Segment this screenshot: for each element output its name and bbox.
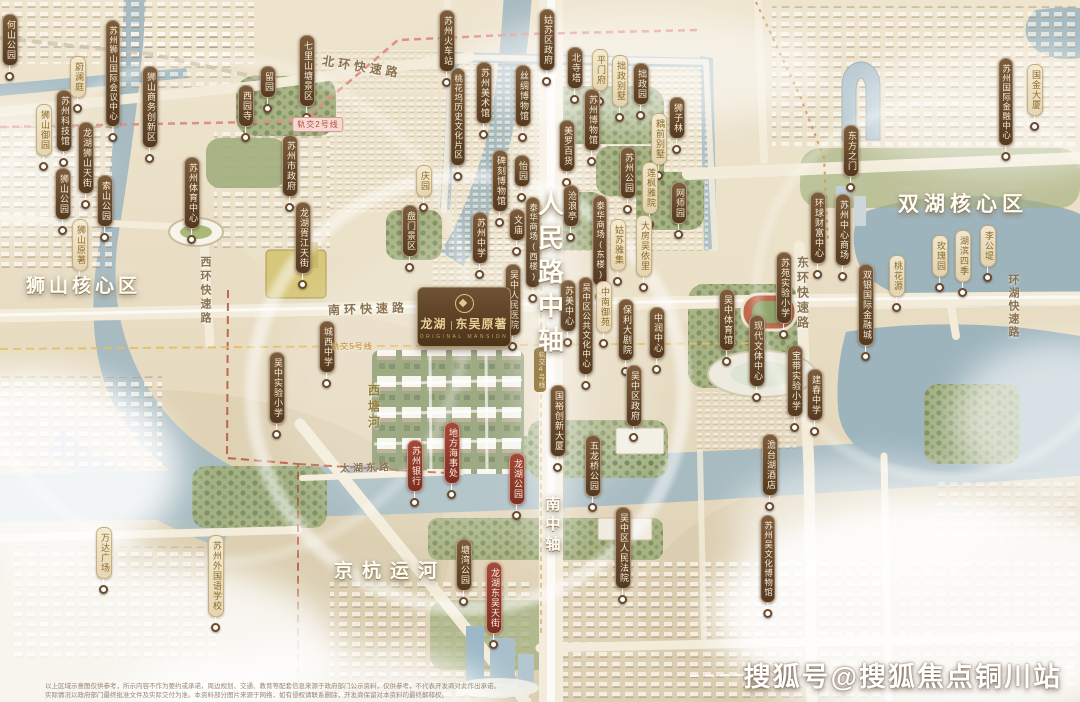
poi-pin-stem bbox=[814, 421, 815, 427]
poi-pin-dot-icon bbox=[892, 303, 901, 312]
poi-pin-stem bbox=[521, 187, 522, 193]
project-logo-card: 龙湖东吴原著 ORIGINAL MANSION bbox=[417, 287, 511, 347]
map-poi-label: 龙湖狮山天街 bbox=[78, 122, 94, 209]
poi-pin-dot-icon bbox=[672, 145, 681, 154]
poi-pin-stem bbox=[85, 194, 86, 200]
poi-pin-stem bbox=[625, 361, 626, 367]
poi-pin-stem bbox=[768, 603, 769, 609]
poi-pin-dot-icon bbox=[512, 511, 521, 520]
map-poi-label: 国裕创新大厦 bbox=[550, 385, 566, 472]
map-poi-label: 苏州中心商场 bbox=[835, 194, 851, 281]
poi-pin-stem bbox=[522, 127, 523, 133]
poi-pin-dot-icon bbox=[813, 270, 822, 279]
poi-pin-dot-icon bbox=[570, 95, 579, 104]
poi-pin-dot-icon bbox=[39, 162, 48, 171]
poi-pin-stem bbox=[446, 72, 447, 78]
map-overlay: 何山公园苏州狮山国际会议中心狮山商务创新区苏州科技馆蔚澜庭狮山御园龙湖狮山天街狮… bbox=[0, 0, 1080, 702]
poi-pin-stem bbox=[104, 227, 105, 233]
poi-pin-dot-icon bbox=[652, 365, 661, 374]
poi-pin-dot-icon bbox=[489, 640, 498, 649]
district-title: 南中轴 bbox=[542, 496, 563, 556]
poi-pin-stem bbox=[769, 496, 770, 502]
poi-pin-dot-icon bbox=[442, 78, 451, 87]
road-label: 太湖东路 bbox=[340, 458, 392, 475]
poi-pin-stem bbox=[409, 257, 410, 263]
poi-pin-dot-icon bbox=[99, 585, 108, 594]
poi-pin-dot-icon bbox=[241, 133, 250, 142]
poi-pin-dot-icon bbox=[645, 220, 654, 229]
poi-pin-stem bbox=[62, 220, 63, 226]
poi-pin-stem bbox=[479, 264, 480, 270]
poi-pin-stem bbox=[516, 505, 517, 511]
watermark: 搜狐号@搜狐焦点铜川站 bbox=[744, 655, 1062, 694]
poi-pin-stem bbox=[622, 589, 623, 595]
poi-pin-stem bbox=[567, 332, 568, 338]
poi-pin-stem bbox=[676, 139, 677, 145]
map-poi-label: 桃花源 bbox=[889, 255, 905, 312]
poi-pin-dot-icon bbox=[419, 203, 428, 212]
poi-pin-stem bbox=[414, 492, 415, 498]
poi-pin-stem bbox=[1006, 146, 1007, 152]
poi-pin-dot-icon bbox=[599, 339, 608, 348]
poi-pin-dot-icon bbox=[621, 367, 630, 376]
poi-pin-dot-icon bbox=[623, 205, 632, 214]
map-poi-label: 狮山御园 bbox=[36, 104, 52, 171]
map-poi-label: 耦前别墅 bbox=[651, 113, 667, 180]
poi-pin-stem bbox=[306, 107, 307, 113]
poi-pin-stem bbox=[574, 89, 575, 95]
poi-pin-stem bbox=[570, 227, 571, 233]
map-poi-label: 七里山塘景区 bbox=[299, 35, 315, 122]
map-poi-label: 姑苏区政府 bbox=[539, 9, 555, 86]
map-poi-label: 东方之门 bbox=[843, 125, 859, 192]
map-poi-label: 北寺塔 bbox=[567, 47, 583, 104]
map-poi-label: 国金大厦 bbox=[1027, 64, 1043, 131]
map-poi-label: 万达广场 bbox=[96, 527, 112, 594]
poi-pin-stem bbox=[592, 497, 593, 503]
poi-pin-dot-icon bbox=[100, 233, 109, 242]
poi-pin-dot-icon bbox=[810, 427, 819, 436]
poi-pin-stem bbox=[276, 424, 277, 430]
map-poi-label: 拙政园 bbox=[633, 63, 649, 120]
poi-pin-dot-icon bbox=[58, 226, 67, 235]
map-poi-label: 美罗百货 bbox=[559, 120, 575, 187]
flower-medallion-icon bbox=[455, 294, 474, 313]
poi-pin-dot-icon bbox=[935, 283, 944, 292]
map-poi-label: 莲枫雅院 bbox=[642, 162, 658, 229]
poi-pin-stem bbox=[591, 151, 592, 157]
poi-pin-stem bbox=[463, 591, 464, 597]
map-poi-label: 桃花坞历史文化片区 bbox=[450, 68, 465, 181]
poi-pin-stem bbox=[658, 165, 659, 171]
poi-pin-dot-icon bbox=[861, 352, 870, 361]
map-poi-label: 苏州科技馆 bbox=[56, 90, 72, 167]
poi-pin-dot-icon bbox=[59, 158, 68, 167]
project-tagline: ORIGINAL MANSION bbox=[420, 334, 508, 340]
poi-pin-stem bbox=[483, 124, 484, 130]
map-poi-label: 姑苏雅集 bbox=[610, 219, 626, 286]
poi-pin-stem bbox=[326, 373, 327, 379]
map-poi-label: 澹台湖酒店 bbox=[762, 434, 778, 511]
poi-pin-stem bbox=[1034, 116, 1035, 122]
poi-pin-dot-icon bbox=[187, 235, 196, 244]
map-poi-label: 苏州火车站 bbox=[439, 10, 455, 87]
poi-pin-stem bbox=[113, 127, 114, 133]
poi-pin-dot-icon bbox=[145, 154, 154, 163]
metro-line-label: 轨交2号线 bbox=[292, 117, 343, 132]
poi-pin-stem bbox=[43, 156, 44, 162]
district-title: 狮山核心区 bbox=[26, 271, 141, 298]
map-poi-label: 中润中心 bbox=[649, 307, 665, 374]
poi-pin-dot-icon bbox=[5, 72, 14, 81]
map-poi-label: 湖滨四季 bbox=[955, 230, 971, 297]
poi-pin-dot-icon bbox=[674, 230, 683, 239]
poi-pin-dot-icon bbox=[447, 490, 456, 499]
poi-pin-stem bbox=[939, 277, 940, 283]
poi-pin-dot-icon bbox=[454, 172, 463, 181]
map-poi-label: 苏州银行 bbox=[407, 440, 423, 507]
poi-pin-dot-icon bbox=[495, 218, 504, 227]
poi-pin-dot-icon bbox=[1002, 152, 1011, 161]
poi-pin-stem bbox=[726, 351, 727, 357]
poi-pin-dot-icon bbox=[272, 430, 281, 439]
poi-pin-dot-icon bbox=[639, 283, 648, 292]
poi-pin-stem bbox=[649, 214, 650, 220]
map-poi-label: 五龙桥公园 bbox=[585, 435, 601, 512]
poi-pin-stem bbox=[603, 333, 604, 339]
poi-pin-stem bbox=[783, 324, 784, 330]
poi-pin-stem bbox=[850, 177, 851, 183]
map-poi-label: 苏州市政府 bbox=[282, 135, 298, 212]
map-poi-label: 现代文体中心 bbox=[749, 315, 765, 402]
map-poi-label: 城西中学 bbox=[319, 321, 335, 388]
poi-pin-stem bbox=[600, 286, 601, 292]
poi-pin-dot-icon bbox=[263, 104, 272, 113]
map-poi-label: 苏州博物馆 bbox=[584, 89, 600, 166]
map-poi-label: 何山公园 bbox=[2, 14, 18, 81]
poi-pin-dot-icon bbox=[636, 111, 645, 120]
map-poi-label: 吴中体育馆 bbox=[719, 289, 735, 366]
map-poi-label: 西园寺 bbox=[238, 85, 254, 142]
poi-pin-dot-icon bbox=[790, 423, 799, 432]
project-title: 龙湖东吴原著 bbox=[420, 315, 507, 332]
poi-pin-stem bbox=[640, 105, 641, 111]
poi-pin-dot-icon bbox=[109, 133, 118, 142]
poi-pin-stem bbox=[512, 336, 513, 342]
poi-pin-dot-icon bbox=[618, 595, 627, 604]
map-poi-label: 苏州体育中心 bbox=[184, 157, 200, 244]
poi-pin-stem bbox=[302, 274, 303, 280]
map-poi-label: 苏州外国语学校 bbox=[208, 535, 224, 632]
map-poi-label: 塘湾公园 bbox=[456, 539, 472, 606]
poi-pin-stem bbox=[103, 579, 104, 585]
poi-pin-stem bbox=[586, 375, 587, 381]
poi-pin-dot-icon bbox=[566, 233, 575, 242]
map-poi-label: 李公堤 bbox=[980, 225, 996, 282]
poi-pin-stem bbox=[617, 271, 618, 277]
poi-pin-dot-icon bbox=[459, 597, 468, 606]
poi-pin-dot-icon bbox=[285, 203, 294, 212]
poi-pin-stem bbox=[493, 634, 494, 640]
map-poi-label: 狮子林 bbox=[669, 97, 685, 154]
map-poi-label: 中南御苑 bbox=[596, 281, 612, 348]
poi-pin-stem bbox=[896, 297, 897, 303]
poi-pin-stem bbox=[633, 427, 634, 433]
map-poi-label: 狮山商务创新区 bbox=[142, 66, 158, 163]
poi-pin-dot-icon bbox=[958, 288, 967, 297]
poi-pin-dot-icon bbox=[322, 379, 331, 388]
poi-pin-dot-icon bbox=[587, 157, 596, 166]
map-poi-label: 索山公园 bbox=[97, 175, 113, 242]
map-poi-label: 怡园 bbox=[514, 155, 530, 202]
road-label: 南环快速路 bbox=[328, 299, 409, 319]
poi-pin-dot-icon bbox=[517, 193, 526, 202]
map-poi-label: 丝绸博物馆 bbox=[515, 65, 531, 142]
map-poi-label: 玫瑰园 bbox=[932, 235, 948, 292]
poi-pin-dot-icon bbox=[596, 292, 605, 301]
map-poi-label: 吴中实验小学 bbox=[269, 352, 285, 439]
map-poi-label: 龙湖公园 bbox=[509, 453, 525, 520]
poi-pin-stem bbox=[627, 199, 628, 205]
map-poi-label: 龙湖胥江天街 bbox=[295, 202, 311, 289]
poi-pin-dot-icon bbox=[562, 178, 571, 187]
poi-pin-stem bbox=[546, 71, 547, 77]
map-poi-label: 大房吴依里 bbox=[636, 215, 652, 292]
road-label: 东环快速路 bbox=[795, 256, 812, 331]
poi-pin-dot-icon bbox=[722, 357, 731, 366]
poi-pin-dot-icon bbox=[654, 171, 663, 180]
poi-pin-dot-icon bbox=[512, 247, 521, 256]
district-title: 人民路中轴 bbox=[531, 190, 568, 360]
map-poi-label: 双银国际金融城 bbox=[858, 264, 874, 361]
poi-pin-stem bbox=[215, 617, 216, 623]
poi-pin-stem bbox=[678, 224, 679, 230]
poi-pin-dot-icon bbox=[613, 277, 622, 286]
poi-pin-stem bbox=[499, 212, 500, 218]
poi-pin-dot-icon bbox=[298, 280, 307, 289]
poi-pin-dot-icon bbox=[752, 393, 761, 402]
poi-pin-dot-icon bbox=[211, 623, 220, 632]
logo-separator bbox=[451, 321, 452, 330]
poi-pin-stem bbox=[451, 484, 452, 490]
map-poi-label: 地方海事处 bbox=[444, 422, 460, 499]
map-poi-label: 苏州吴文化博物馆 bbox=[760, 515, 775, 618]
poi-pin-stem bbox=[566, 172, 567, 178]
map-poi-label: 苏州公园 bbox=[620, 147, 636, 214]
map-poi-label: 狮山公园 bbox=[55, 168, 71, 235]
road-label: 北环快速路 bbox=[321, 52, 403, 81]
map-poi-label: 龙湖东吴天街 bbox=[486, 562, 502, 649]
map-poi-label: 环球财富中心 bbox=[810, 192, 826, 279]
poi-pin-dot-icon bbox=[479, 130, 488, 139]
poi-pin-dot-icon bbox=[764, 609, 773, 618]
poi-pin-stem bbox=[842, 266, 843, 272]
road-label: 西环快速路 bbox=[197, 256, 213, 326]
poi-pin-dot-icon bbox=[846, 183, 855, 192]
river-label: 西塘河 bbox=[366, 384, 383, 432]
district-title: 京杭运河 bbox=[334, 556, 446, 583]
poi-pin-stem bbox=[245, 127, 246, 133]
poi-pin-dot-icon bbox=[595, 97, 604, 106]
poi-pin-dot-icon bbox=[518, 133, 527, 142]
poi-pin-stem bbox=[191, 229, 192, 235]
map-poi-label: 苏州狮山国际会议中心 bbox=[105, 20, 120, 142]
poi-pin-stem bbox=[817, 264, 818, 270]
poi-pin-stem bbox=[557, 457, 558, 463]
poi-pin-stem bbox=[458, 166, 459, 172]
map-poi-label: 吴中区公共文化中心 bbox=[578, 277, 593, 390]
map-poi-label: 网师园 bbox=[671, 182, 687, 239]
poi-pin-stem bbox=[149, 148, 150, 154]
poi-pin-dot-icon bbox=[765, 502, 774, 511]
map-poi-label: 建春中学 bbox=[807, 369, 823, 436]
road-label: 环湖快速路 bbox=[1005, 274, 1021, 339]
poi-pin-dot-icon bbox=[588, 503, 597, 512]
poi-pin-stem bbox=[756, 387, 757, 393]
poi-pin-dot-icon bbox=[629, 433, 638, 442]
poi-pin-stem bbox=[962, 282, 963, 288]
poi-pin-stem bbox=[656, 359, 657, 365]
map-poi-label: 拙政别墅 bbox=[612, 55, 628, 122]
poi-pin-dot-icon bbox=[405, 263, 414, 272]
poi-pin-stem bbox=[63, 152, 64, 158]
poi-pin-stem bbox=[987, 267, 988, 273]
map-poi-label: 盘门景区 bbox=[402, 205, 418, 272]
poi-pin-dot-icon bbox=[1030, 122, 1039, 131]
map-poi-label: 蔚澜庭 bbox=[70, 56, 86, 113]
poi-pin-stem bbox=[77, 98, 78, 104]
map-poi-label: 留园 bbox=[260, 66, 276, 113]
poi-pin-stem bbox=[516, 241, 517, 247]
map-poi-label: 吴中区政府 bbox=[626, 365, 642, 442]
poi-pin-dot-icon bbox=[838, 272, 847, 281]
poi-pin-dot-icon bbox=[410, 498, 419, 507]
map-poi-label: 庆园 bbox=[416, 165, 432, 212]
poi-pin-dot-icon bbox=[553, 463, 562, 472]
map-poi-label: 苏州美术馆 bbox=[476, 62, 492, 139]
poi-pin-dot-icon bbox=[779, 330, 788, 339]
poi-pin-stem bbox=[619, 107, 620, 113]
poi-pin-stem bbox=[794, 417, 795, 423]
poi-pin-dot-icon bbox=[983, 273, 992, 282]
poi-pin-stem bbox=[9, 66, 10, 72]
map-poi-label: 苏苑实验小学 bbox=[776, 252, 792, 339]
map-poi-label: 保利大剧院 bbox=[618, 299, 634, 376]
map-poi-label: 苏州中学 bbox=[472, 212, 488, 279]
poi-pin-dot-icon bbox=[73, 104, 82, 113]
map-poi-label: 平门府 bbox=[592, 49, 608, 106]
poi-pin-stem bbox=[423, 197, 424, 203]
district-title: 双湖核心区 bbox=[898, 188, 1028, 218]
map-poi-label: 苏州国际金融中心 bbox=[998, 58, 1013, 161]
poi-pin-dot-icon bbox=[615, 113, 624, 122]
poi-pin-dot-icon bbox=[582, 381, 591, 390]
poi-pin-dot-icon bbox=[542, 77, 551, 86]
poi-pin-stem bbox=[289, 197, 290, 203]
poi-pin-stem bbox=[599, 91, 600, 97]
poi-pin-stem bbox=[267, 98, 268, 104]
poi-pin-stem bbox=[865, 346, 866, 352]
map-poi-label: 泰华商场(东楼) bbox=[592, 195, 607, 301]
poi-pin-stem bbox=[643, 277, 644, 283]
metro-line-label: 轨交5号线 bbox=[331, 341, 372, 352]
map-poi-label: 吴中区人民法院 bbox=[615, 507, 631, 604]
map-poi-label: 文庙 bbox=[509, 209, 525, 256]
poi-pin-dot-icon bbox=[81, 200, 90, 209]
map-poi-label: 碑刻博物馆 bbox=[492, 150, 508, 227]
poi-pin-dot-icon bbox=[475, 270, 484, 279]
map-poi-label: 宝带实验小学 bbox=[787, 345, 803, 432]
map-screenshot: 何山公园苏州狮山国际会议中心狮山商务创新区苏州科技馆蔚澜庭狮山御园龙湖狮山天街狮… bbox=[0, 0, 1080, 702]
